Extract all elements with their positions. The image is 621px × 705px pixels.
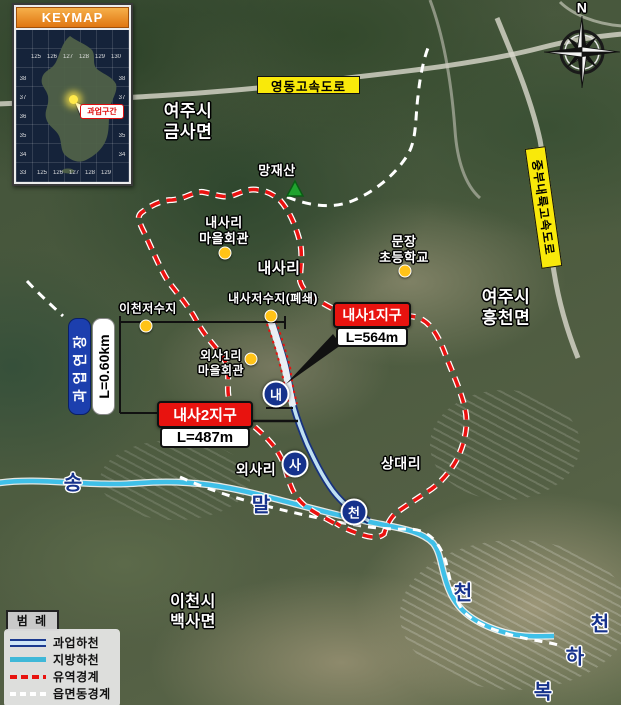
river-badge-sa: 사 <box>282 451 309 478</box>
keymap-lon: 127 <box>69 170 79 176</box>
river-char-mal: 말 <box>252 489 270 518</box>
minor-road <box>430 0 480 198</box>
keymap-lat: 38 <box>20 76 27 82</box>
marker-munjang-school <box>399 265 412 278</box>
keymap-inset: KEYMAP 125 126 127 128 129 130 38 37 36 … <box>12 3 133 186</box>
keymap-lat: 37 <box>119 95 126 101</box>
keymap-lon: 125 <box>31 54 41 60</box>
map-canvas: 여주시 금사면 망재산 내사리 마을회관 내사리 문장 초등학교 여주시 흥천면… <box>0 0 621 705</box>
project-extension-length: L=0.60km <box>92 318 115 415</box>
label-yeoju-geumsa: 여주시 금사면 <box>164 101 212 142</box>
township-boundary <box>180 477 558 645</box>
keymap-lat: 36 <box>20 114 27 120</box>
keymap-lon: 129 <box>101 170 111 176</box>
label-icheon-baeksa: 이천시 백사면 <box>170 592 216 631</box>
keymap-lon: 126 <box>53 170 63 176</box>
district1-callout: 내사1지구 L=564m <box>333 302 411 347</box>
keymap-map: 125 126 127 128 129 130 38 37 36 35 34 3… <box>16 30 129 182</box>
district1-length: L=564m <box>336 327 408 347</box>
label-yeoju-heungcheon: 여주시 흥천면 <box>482 287 530 328</box>
legend-item-local-stream: 지방하천 <box>10 651 114 668</box>
label-oesari: 외사리 <box>236 461 276 478</box>
river-char-song: 송 <box>64 467 82 496</box>
keymap-lon: 127 <box>63 54 73 60</box>
legend-item-township-boundary: 읍면동경계 <box>10 685 114 702</box>
keymap-lon: 128 <box>85 170 95 176</box>
river-char-ha: 하 <box>566 641 584 670</box>
keymap-lat: 34 <box>119 152 126 158</box>
keymap-lon: 128 <box>79 54 89 60</box>
label-mangjaesan: 망재산 <box>258 163 295 179</box>
watershed-boundary-symbol <box>10 675 46 679</box>
legend-label: 과업하천 <box>53 634 99 651</box>
river-badge-cheon: 천 <box>341 499 368 526</box>
label-naesa-reservoir: 내사저수지(폐쇄) <box>228 292 318 307</box>
project-extension-banner: 과업연장 L=0.60km <box>68 318 115 415</box>
marker-naesa-reservoir <box>265 310 278 323</box>
banner-yeongdong-expressway: 영동고속도로 <box>257 76 360 94</box>
keymap-lat: 34 <box>20 152 27 158</box>
label-sangdaeri: 상대리 <box>381 455 421 472</box>
keymap-lat: 38 <box>119 76 126 82</box>
marker-naesari-hall <box>219 247 232 260</box>
district2-callout: 내사2지구 L=487m <box>157 401 253 448</box>
project-stream-symbol <box>10 639 46 647</box>
district2-name: 내사2지구 <box>157 401 253 428</box>
keymap-lat: 33 <box>20 170 27 176</box>
legend-item-watershed-boundary: 유역경계 <box>10 668 114 685</box>
mountain-peak-icon <box>287 181 303 196</box>
keymap-lon: 130 <box>111 54 121 60</box>
keymap-project-label: 과업구간 <box>80 104 124 119</box>
label-icheon-reservoir: 이천저수지 <box>119 302 177 317</box>
compass-north-text: N <box>577 0 588 17</box>
legend-item-project-stream: 과업하천 <box>10 634 114 651</box>
legend-label: 지방하천 <box>53 651 99 668</box>
district1-name: 내사1지구 <box>333 302 411 328</box>
legend-label: 읍면동경계 <box>53 685 111 702</box>
township-boundary-symbol <box>10 692 46 696</box>
keymap-lon: 126 <box>47 54 57 60</box>
keymap-lon: 129 <box>95 54 105 60</box>
marker-icheon-reservoir <box>140 320 153 333</box>
label-munjang-school: 문장 초등학교 <box>379 234 429 266</box>
label-naesari: 내사리 <box>258 260 301 278</box>
river-badge-nae: 내 <box>263 381 290 408</box>
marker-oesa1ri-hall <box>245 353 258 366</box>
keymap-lat: 35 <box>119 133 126 139</box>
keymap-lon: 125 <box>37 170 47 176</box>
legend-box: 과업하천 지방하천 유역경계 읍면동경계 <box>4 629 120 705</box>
label-naesari-hall: 내사리 마을회관 <box>199 215 249 247</box>
local-stream-casing <box>0 481 554 636</box>
keymap-title: KEYMAP <box>16 7 129 28</box>
legend-label: 유역경계 <box>53 668 99 685</box>
compass-cardinal-points <box>544 16 620 88</box>
keymap-project-dot <box>69 95 78 104</box>
legend-title: 범 례 <box>6 610 59 631</box>
river-char-bok: 복 <box>534 676 552 705</box>
keymap-lat: 35 <box>20 133 27 139</box>
river-char-cheon-bokha: 천 <box>591 608 609 637</box>
keymap-lat: 37 <box>20 95 27 101</box>
label-oesa1ri-hall: 외사1리 마을회관 <box>198 348 244 377</box>
project-extension-label: 과업연장 <box>68 318 91 415</box>
district2-length: L=487m <box>160 427 250 448</box>
township-boundary <box>27 281 63 316</box>
river-char-cheon-songmal: 천 <box>454 577 472 606</box>
local-stream-symbol <box>10 657 46 662</box>
